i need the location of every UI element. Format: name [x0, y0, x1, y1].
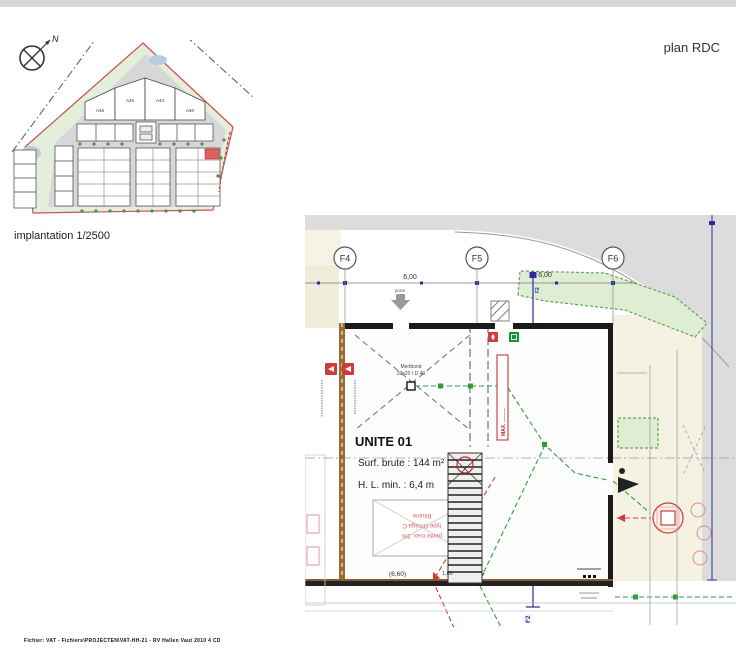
- unit-label: A46: [96, 108, 105, 113]
- grid-bubble-f6: F6: [602, 247, 624, 269]
- skylight-label-1: Mertbond: [400, 364, 421, 370]
- site-plan-caption: implantation 1/2500: [14, 230, 110, 242]
- door-label: porte: [395, 288, 406, 293]
- plan-title: plan RDC: [664, 40, 720, 55]
- wall-right: [608, 323, 613, 587]
- unit-label: A44: [156, 98, 165, 103]
- dim-bottom: (6,60): [389, 571, 406, 578]
- unit-height: H. L. min. : 6,4 m: [358, 480, 434, 491]
- verge: [305, 266, 339, 328]
- emergency-exit-icon: [509, 332, 519, 342]
- roof-note-1: Bitume: [412, 512, 431, 518]
- roof-note-3: pente max. 3%: [401, 532, 442, 538]
- grid-bubble-f5: F5: [466, 247, 488, 269]
- axis-label-bottom: F2: [525, 615, 532, 623]
- skylight-label-2: 20x20 / D 40: [397, 371, 426, 377]
- ramp-hatch: [491, 301, 509, 321]
- grid-bubble-label: F6: [608, 254, 619, 264]
- site-block-lower: [78, 148, 220, 206]
- dim-stair: 1,00: [442, 571, 453, 577]
- fire-extinguisher-icon: [488, 332, 498, 342]
- staircase: [448, 453, 482, 583]
- drawing-sheet: plan RDC N A46 A45 A44 A40: [0, 0, 736, 663]
- door-opening-top: [393, 323, 409, 329]
- basin: [149, 55, 167, 65]
- axis-marker-icon: [530, 272, 537, 278]
- unit-label: A40: [186, 108, 195, 113]
- entrance-arrow-icon: porte: [391, 288, 410, 310]
- unit-area: Surf. brute : 144 m²: [358, 458, 445, 469]
- property-line-right: [186, 40, 254, 98]
- axis-label-top: F2: [535, 287, 541, 293]
- sheet-edge-strip: [0, 0, 736, 7]
- site-plan: A46 A45 A44 A40: [8, 40, 260, 226]
- grid-bubble-f4: F4: [334, 247, 356, 269]
- hose-reel-icon: [342, 363, 354, 375]
- unit-label: A45: [126, 98, 135, 103]
- road-area-right: [702, 333, 736, 581]
- hedge-patch: [618, 418, 658, 448]
- unit-title: UNITE 01: [355, 434, 412, 449]
- max-label: MAX. ………: [501, 407, 507, 436]
- hose-reel-icon: [325, 363, 337, 375]
- door-opening-right: [608, 463, 613, 495]
- max-label-box: MAX. ………: [497, 355, 508, 440]
- wall-top: [345, 323, 608, 329]
- grid-bubble-label: F4: [340, 254, 351, 264]
- dim-bay-2: 6,00: [538, 272, 552, 279]
- site-block-mid-row: [77, 122, 213, 143]
- file-path: Fichier: VAT - Fichiers\PROJECTEN\VAT-HH…: [24, 638, 221, 644]
- dim-bay-1: 6,00: [403, 274, 417, 281]
- highlighted-unit: [205, 149, 219, 159]
- roof-note-2: type Oméga C: [402, 522, 441, 528]
- grid-bubble-label: F5: [472, 254, 483, 264]
- door-opening-top-2: [495, 323, 513, 329]
- floor-plan: 6,00 6,00 F4 F5 F6 F2 F2: [305, 215, 736, 627]
